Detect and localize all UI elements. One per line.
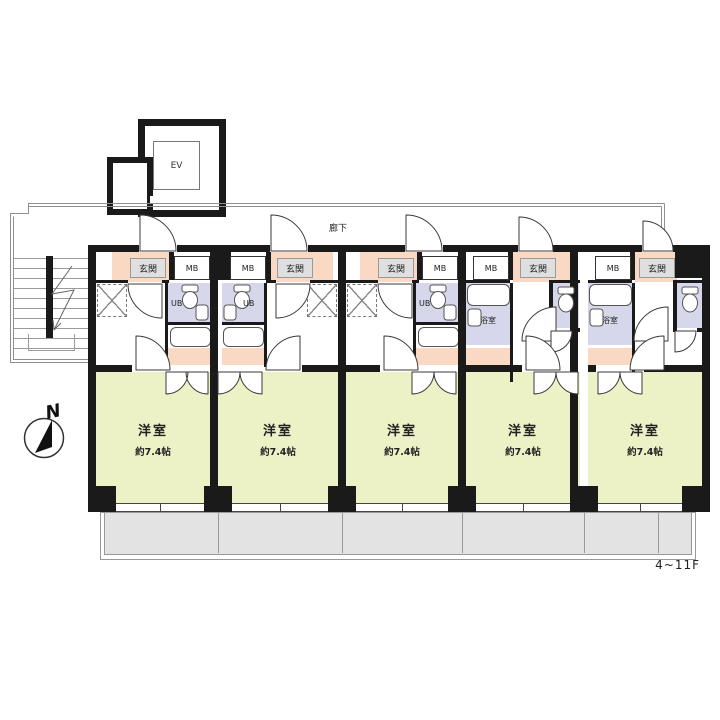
unit4-partition [549,280,580,283]
unit2-hall-door [276,284,310,318]
unit3-meter-box: MB [422,256,458,280]
party-wall-1-2 [210,252,218,486]
elevator-label: EV [171,161,183,171]
unit2-partition [264,283,267,367]
pillar [328,486,356,512]
unit3-hall-door [378,284,412,318]
unit5-room-wall [644,365,702,372]
compass-north-label: N [44,400,63,424]
unit3-closet [347,284,377,317]
elevator-side-shaft [107,157,153,215]
unit1-bath-label: UB [171,299,182,308]
unit1-room-size: 約7.4帖 [96,444,210,458]
unit1-room-label: 洋室 [96,420,210,439]
building-right-wall [702,245,710,512]
unit5-window [598,503,682,512]
unit2-partition [222,322,264,325]
unit1-room-wall [96,365,132,372]
unit2-room-size: 約7.4帖 [218,444,338,458]
unit4-partition [510,283,513,382]
unit2-kitchen-counter [222,348,265,365]
unit5-bath-label: 浴室 [602,315,618,326]
unit1-entry-opening [139,245,177,252]
unit4-toilet-wall [549,283,553,332]
compass-needle [35,420,52,453]
unit5-partition [632,283,635,382]
unit2-meter-box: MB [230,256,266,280]
staircase [13,256,88,351]
unit5-meter-box: MB [595,256,631,280]
unit3-partition [413,283,416,367]
pillar [448,486,476,512]
stair-center-wall [46,256,53,338]
corridor-label: 廊下 [318,221,358,234]
elevator-door-opening [150,196,166,203]
unit5-bathtub [589,284,632,306]
party-wall-3-4 [458,252,466,486]
unit4-bath-label: 浴室 [480,315,496,326]
compass-circle [25,419,64,458]
unit5-toilet-wall [673,283,677,332]
unit1-entrance-label: 玄関 [130,258,166,278]
unit3-kitchen-counter [415,348,458,365]
unit4-entrance-label: 玄関 [520,258,556,278]
balcony-outer-line [100,512,696,560]
balcony-divider [462,512,463,553]
unit5-partition [673,280,704,283]
unit2-door-jamb [266,252,271,280]
unit3-entry-opening [405,245,443,252]
unit5-room-size: 約7.4帖 [588,444,702,458]
unit5-toilet-room [677,283,703,328]
unit4-room-size: 約7.4帖 [466,444,580,458]
unit2-room-door [266,336,300,370]
pillar [570,486,598,512]
unit1-hall-door [128,284,162,318]
pillar [204,486,232,512]
unit4-toilet-wall [573,328,580,332]
elevator-cage: EV [153,141,200,190]
unit5-partition [588,280,632,283]
corner-pillar-top-right [675,245,710,278]
balcony-divider [658,512,659,553]
unit3-room-size: 約7.4帖 [346,444,458,458]
unit4-meter-box: MB [473,256,509,280]
unit4-partition [466,280,510,283]
unit5-entrance-label: 玄関 [639,258,675,278]
floor-plan: EV 廊下 玄関 玄関 玄関 玄関 玄関 MB MB MB MB MB UB U… [0,0,720,720]
unit3-room-label: 洋室 [346,420,458,439]
unit3-bath-label: UB [419,299,430,308]
unit5-room-wall [588,365,596,372]
unit1-meter-box: MB [174,256,210,280]
unit3-partition [346,280,378,283]
unit1-partition [168,322,210,325]
unit4-room-wall [466,365,522,372]
unit4-kitchen-counter [466,348,510,365]
pillar [88,486,116,512]
unit1-closet [97,284,127,317]
unit3-bathtub [418,327,459,347]
unit2-partition [310,280,338,283]
unit5-hall-door [634,307,668,341]
unit2-window [232,503,328,512]
compass: N [25,400,64,457]
unit2-partition [266,280,276,283]
unit5-entry-opening [642,245,673,252]
stair-direction-arrow [52,266,74,330]
unit4-room-door [526,336,560,370]
unit1-window [116,503,204,512]
unit3-room-wall [346,365,380,372]
unit2-closet [307,284,337,317]
unit2-room-wall [302,365,338,372]
unit5-kitchen-counter [588,348,632,365]
unit5-toilet-door [675,331,696,352]
unit4-room-label: 洋室 [466,420,580,439]
balcony-divider [342,512,343,553]
building-left-wall [88,245,96,512]
unit1-partition [96,280,128,283]
unit2-entry-opening [270,245,308,252]
unit4-bathtub [467,284,510,306]
unit2-bathtub [223,327,264,347]
unit2-entrance-label: 玄関 [277,258,313,278]
unit5-room-label: 洋室 [588,420,702,439]
pillar [682,486,710,512]
unit1-bathtub [170,327,211,347]
unit2-bath-label: UB [243,299,254,308]
balcony-divider [584,512,585,553]
unit4-window [476,503,570,512]
party-wall-2-3 [338,252,346,486]
unit3-window [356,503,448,512]
unit1-partition [165,283,168,367]
floor-range-label: 4~11F [620,558,700,572]
unit5-toilet-wall [697,328,703,332]
unit4-toilet-door [551,331,572,352]
balcony-divider [218,512,219,553]
unit2-room-label: 洋室 [218,420,338,439]
unit1-kitchen-counter [167,348,210,365]
unit3-partition [416,322,458,325]
building-top-wall [88,245,710,252]
unit4-entry-opening [518,245,553,252]
unit3-entrance-label: 玄関 [378,258,414,278]
